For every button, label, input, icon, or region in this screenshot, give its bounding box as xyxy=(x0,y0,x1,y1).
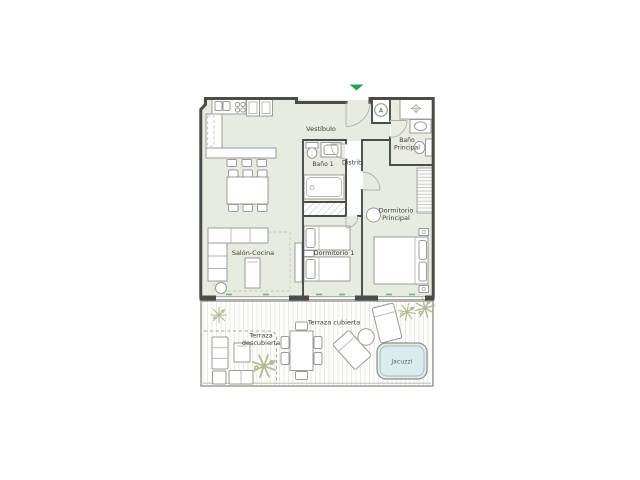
outdoor-side-table xyxy=(358,329,374,345)
distribuidor-label: Distrib. xyxy=(342,160,364,167)
outdoor-armchair xyxy=(213,371,227,384)
double-bed xyxy=(374,237,428,284)
access-marker: A xyxy=(375,104,388,117)
toilet-tank xyxy=(306,143,318,149)
terraza-descubierta-label-2: descubierta xyxy=(242,339,280,347)
sofa-vertical xyxy=(208,243,227,281)
toilet-tank xyxy=(426,139,433,156)
dining-chair xyxy=(229,205,239,212)
vestibulo-label: Vestíbulo xyxy=(306,125,336,133)
sofa-horizontal xyxy=(208,228,268,243)
window-dormitorio-principal xyxy=(378,297,425,300)
jacuzzi-label: Jacuzzi xyxy=(390,360,412,366)
wall-pillar xyxy=(425,296,435,301)
outdoor-chair xyxy=(281,337,289,349)
jacuzzi: Jacuzzi xyxy=(377,343,427,379)
side-table-round xyxy=(216,283,227,294)
nightstand xyxy=(419,286,429,293)
outdoor-chair xyxy=(281,353,289,365)
floor-plan: Jacuzzi Terraza cubierta Terraza descubi… xyxy=(0,0,640,480)
dormitorio-1-label: Dormitorio 1 xyxy=(314,249,355,257)
salon-cocina-label: Salón-Cocina xyxy=(232,249,274,257)
dormitorio-principal-label-2: Principal xyxy=(382,214,410,222)
dining-table xyxy=(227,177,268,204)
wall-pillar xyxy=(289,296,309,301)
single-bed xyxy=(304,226,350,250)
outdoor-dining-table xyxy=(290,331,313,371)
terraza-cubierta-label: Terraza cubierta xyxy=(307,319,360,327)
dining-chair xyxy=(243,205,253,212)
bano-1-label: Baño 1 xyxy=(312,161,333,168)
wall-pillar xyxy=(200,296,217,301)
bar-stool xyxy=(227,160,237,167)
outdoor-sofa xyxy=(212,337,228,369)
terrace: Jacuzzi Terraza cubierta Terraza descubi… xyxy=(201,296,437,386)
outdoor-chair xyxy=(314,353,322,365)
coffee-table xyxy=(245,258,260,288)
bar-stool xyxy=(242,160,252,167)
wall-pillar xyxy=(355,296,378,301)
nightstand xyxy=(304,251,314,257)
outdoor-chair xyxy=(314,337,322,349)
bano-principal-label-2: Principal xyxy=(394,145,420,152)
dining-chair xyxy=(243,170,253,177)
wardrobe-hatched xyxy=(304,203,346,216)
dining-chair xyxy=(229,170,239,177)
window-dormitorio-1 xyxy=(309,297,355,300)
single-bed xyxy=(304,257,350,281)
bar-stool xyxy=(257,160,267,167)
kitchen-peninsula xyxy=(206,148,276,158)
outdoor-chair xyxy=(296,372,308,380)
entrance-arrow-icon xyxy=(350,85,364,91)
dining-chair xyxy=(258,170,268,177)
wardrobe-shelved xyxy=(417,168,433,213)
outdoor-chair xyxy=(296,322,308,330)
bano-principal-label-1: Baño xyxy=(399,137,415,144)
plant-icon xyxy=(211,307,226,322)
dining-chair xyxy=(258,205,268,212)
nightstand xyxy=(419,229,429,236)
tv-unit xyxy=(295,243,302,282)
window-salon xyxy=(216,297,289,300)
toilet-bowl xyxy=(307,148,317,159)
floor-plan-page: Jacuzzi Terraza cubierta Terraza descubi… xyxy=(0,0,640,480)
